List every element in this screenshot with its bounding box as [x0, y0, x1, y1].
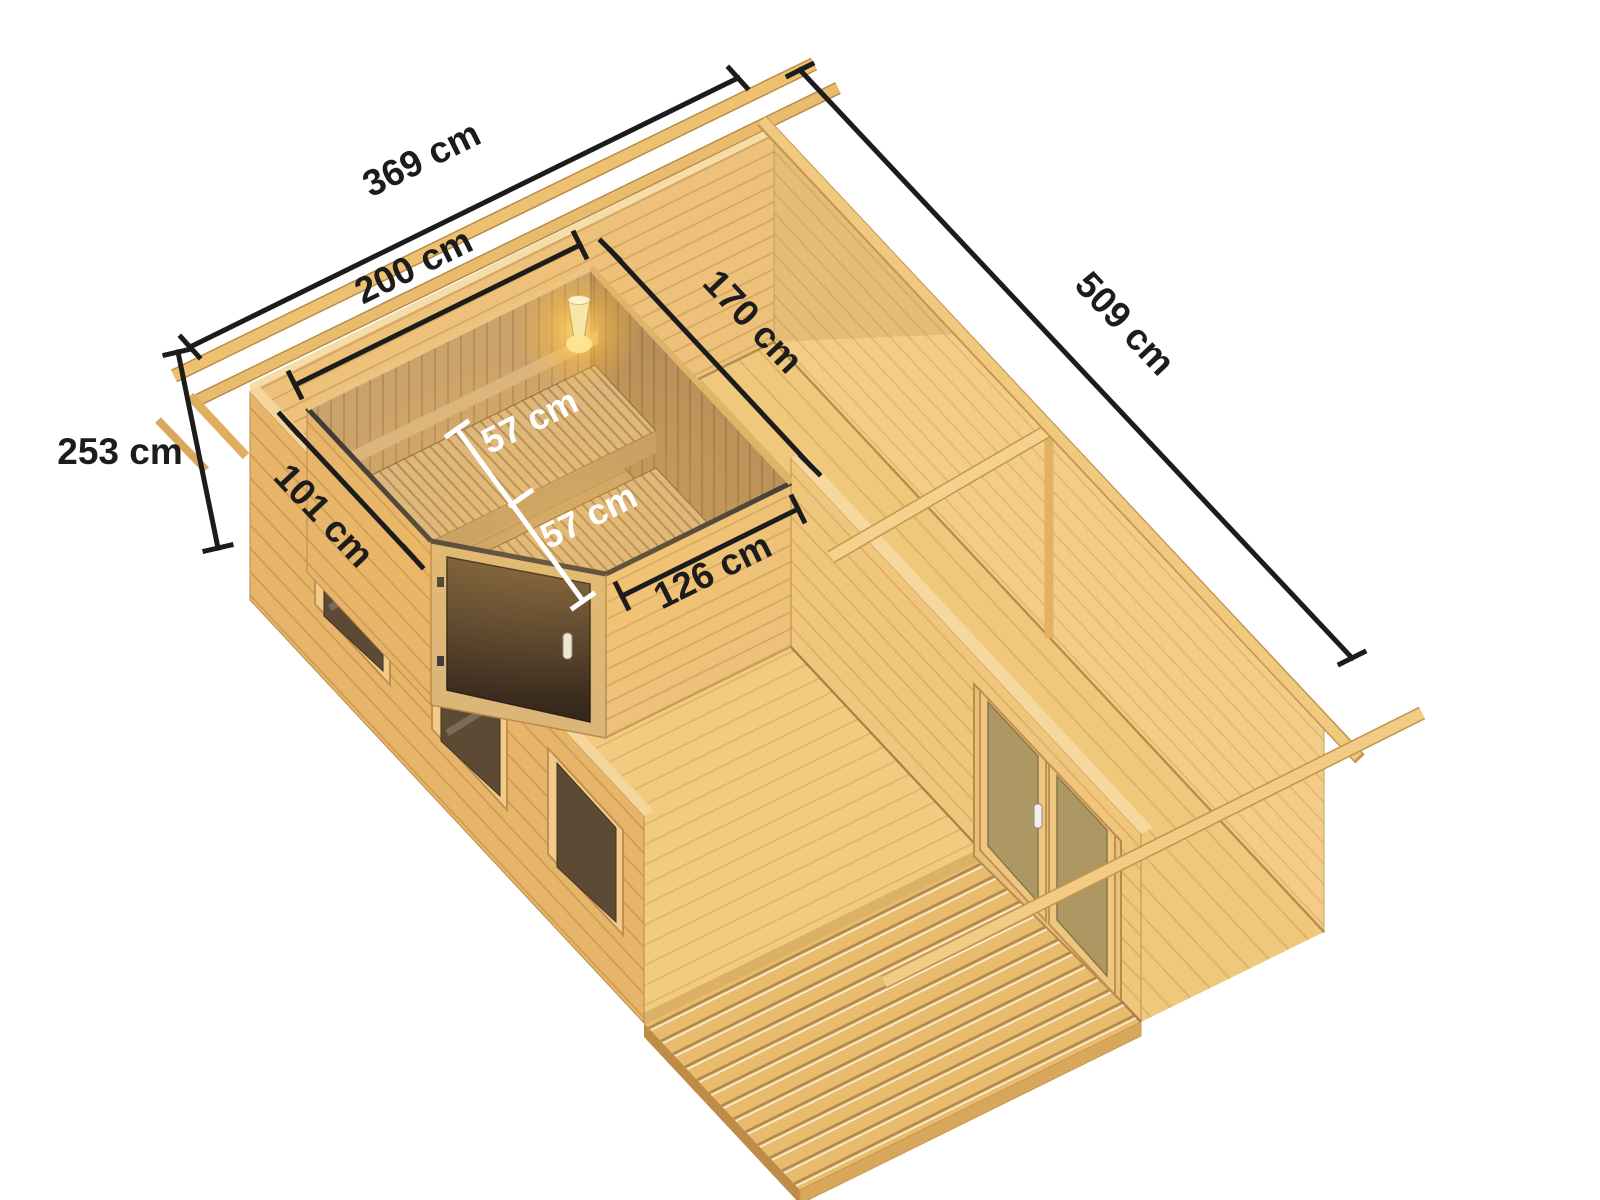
dim-wall-height-label: 253 cm [57, 431, 183, 472]
lamp-top [568, 296, 590, 305]
sauna-cabin-render: 369 cm 509 cm 253 cm 200 cm 170 cm [0, 0, 1600, 1200]
door-handle [1034, 804, 1042, 828]
render-canvas: 369 cm 509 cm 253 cm 200 cm 170 cm [0, 0, 1600, 1200]
